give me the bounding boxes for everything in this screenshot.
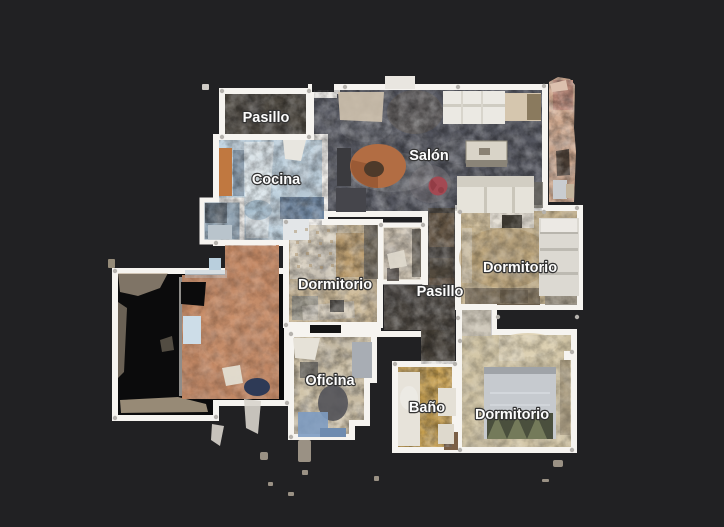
svg-text:Cocina: Cocina: [252, 172, 301, 188]
svg-text:Pasillo: Pasillo: [243, 110, 290, 126]
svg-text:Salón: Salón: [409, 148, 448, 164]
svg-text:Dormitorio: Dormitorio: [475, 407, 549, 423]
svg-text:Dormitorio: Dormitorio: [298, 277, 372, 293]
svg-text:Dormitorio: Dormitorio: [483, 260, 557, 276]
svg-text:Pasillo: Pasillo: [417, 284, 464, 300]
svg-text:Baño: Baño: [409, 400, 445, 416]
svg-text:Oficina: Oficina: [305, 373, 355, 389]
